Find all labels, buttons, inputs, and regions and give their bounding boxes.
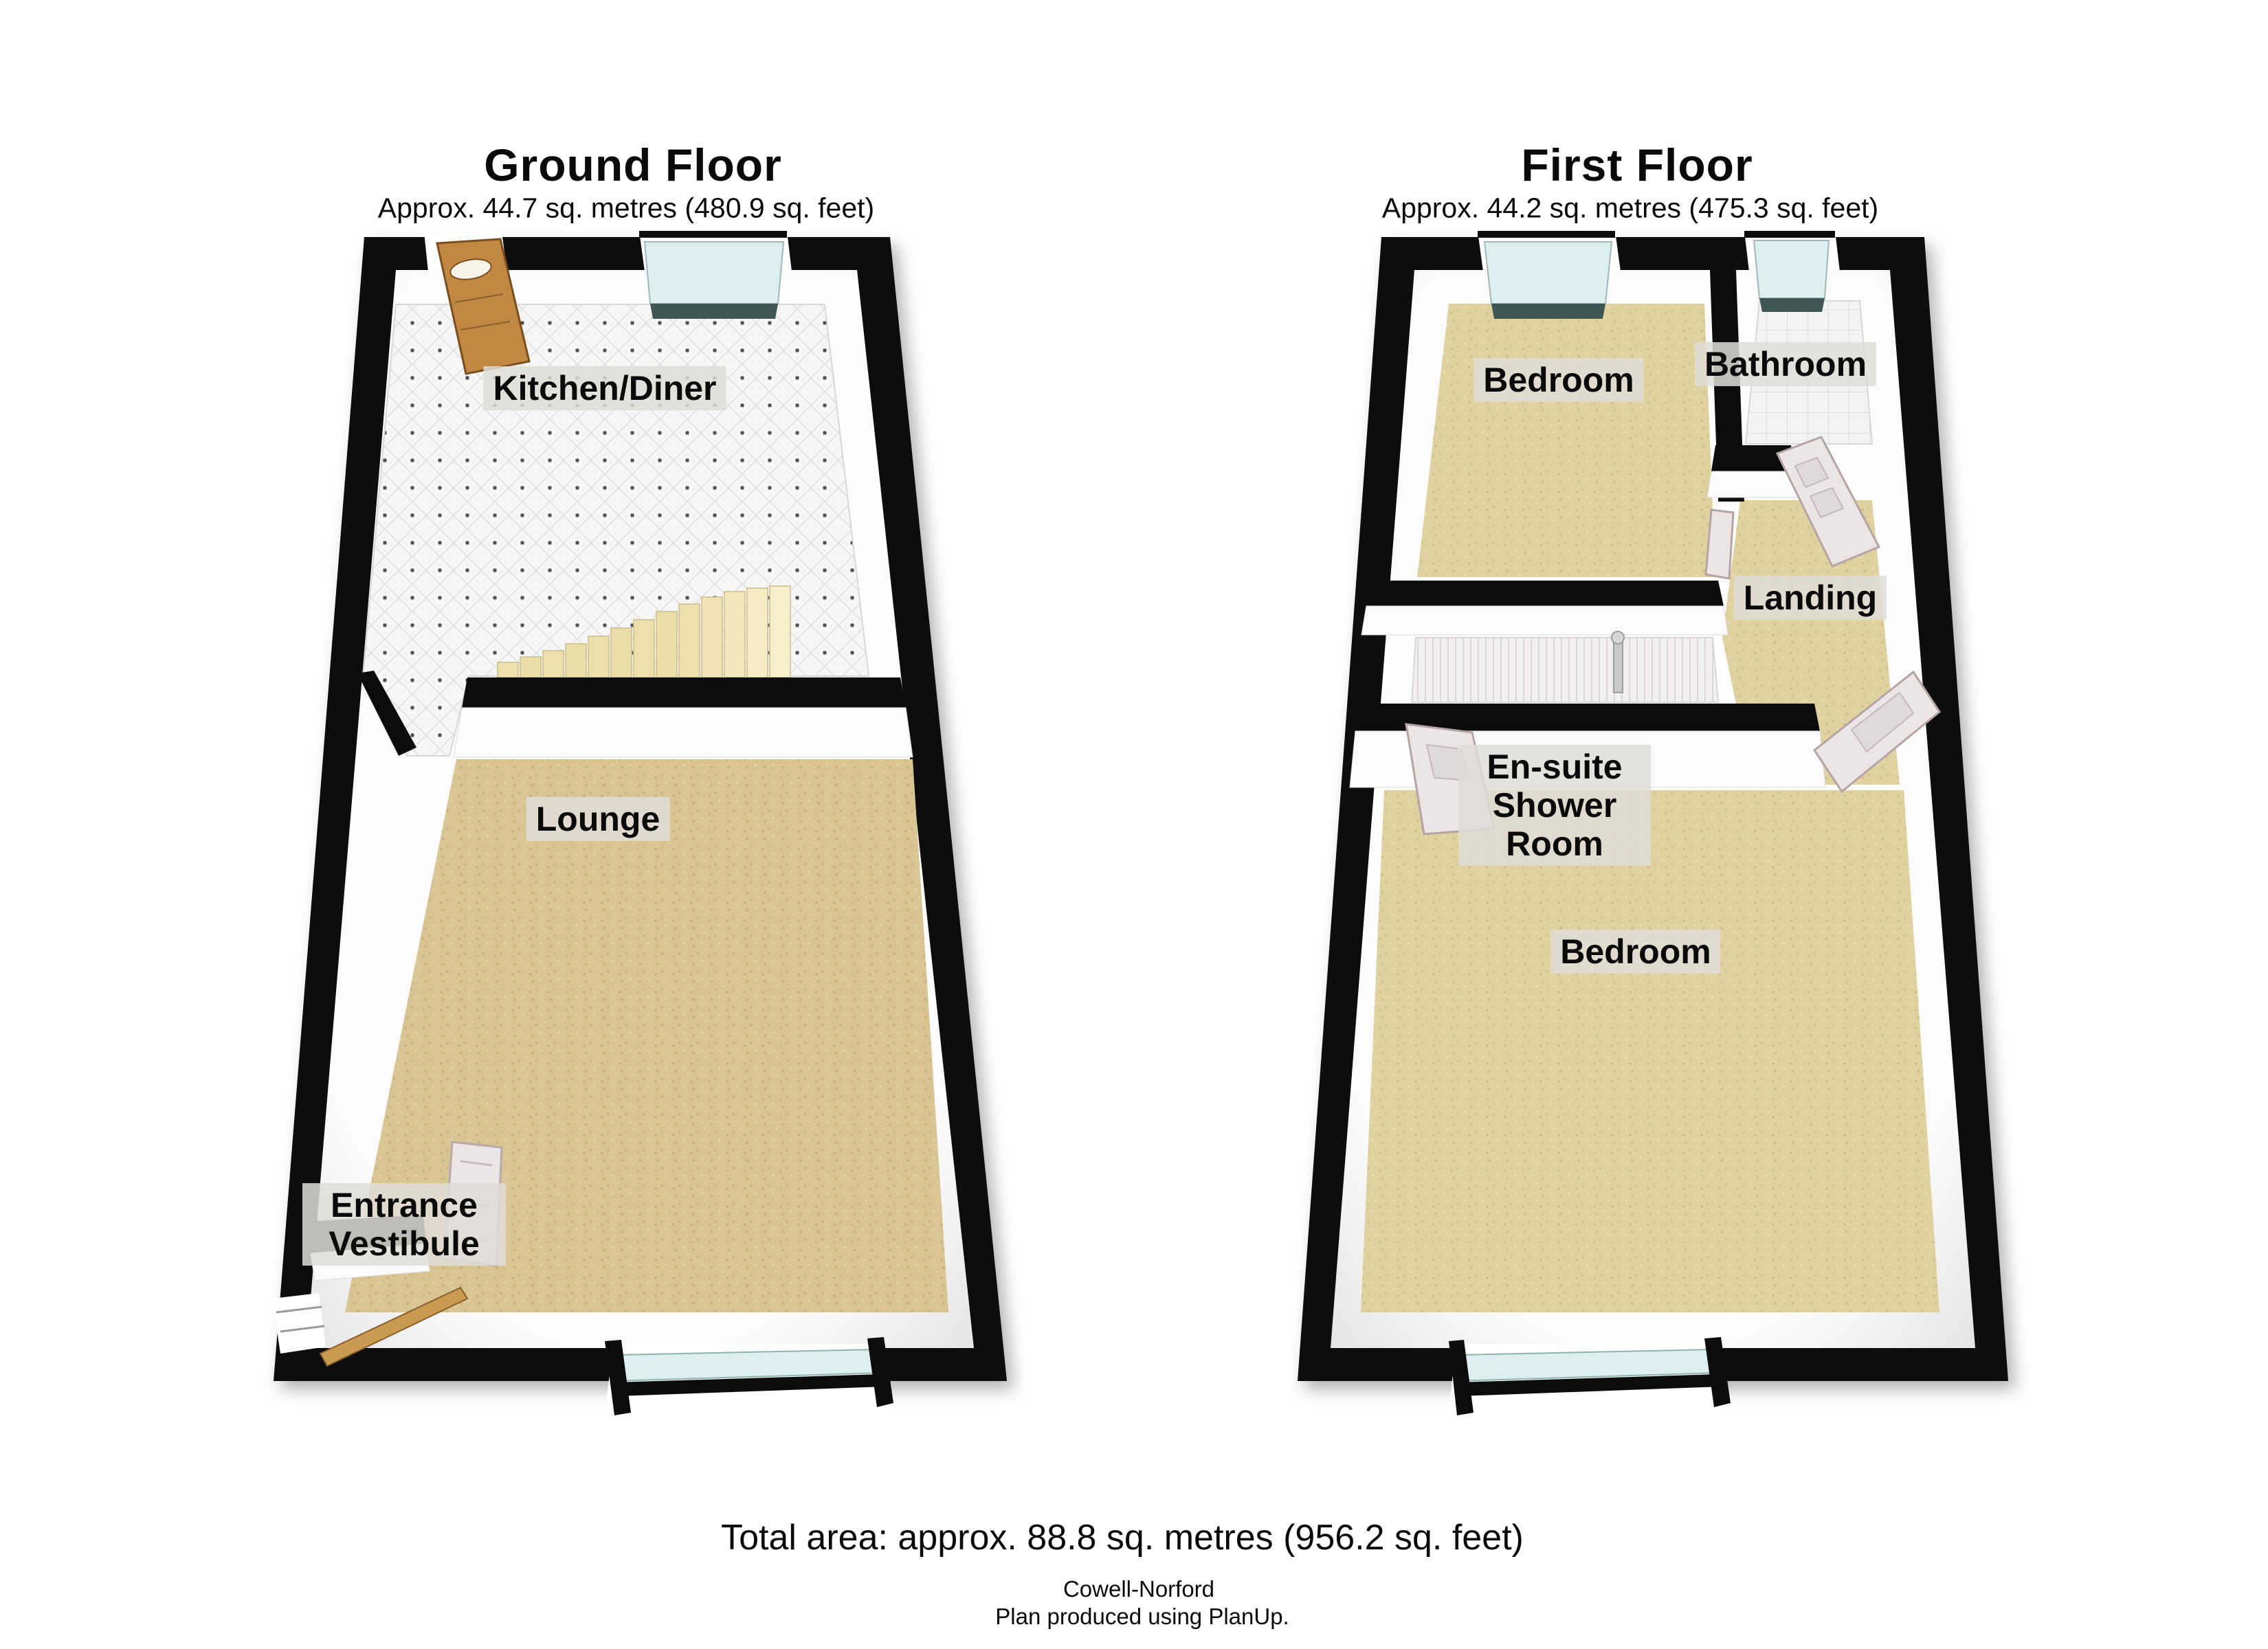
- ff-ensuite-floor: [1412, 638, 1718, 702]
- gf-divider-wall-face: [454, 708, 913, 757]
- room-label-bedroom-front: Bedroom: [1474, 358, 1643, 402]
- ff-bathroom-bottom-wall-face: [1707, 471, 1799, 497]
- room-label-bedroom-rear: Bedroom: [1550, 930, 1720, 974]
- room-label-kitchen-diner: Kitchen/Diner: [483, 366, 726, 410]
- ff-bedroom-rear-floor: [1361, 790, 1939, 1312]
- ff-bedroom-window: [1478, 231, 1621, 319]
- first-floor-title: First Floor: [1521, 139, 1753, 191]
- gf-frontdoor-gap: [272, 1293, 326, 1354]
- ff-bedroom-front-floor: [1417, 304, 1715, 577]
- credit-line-text: Plan produced using PlanUp.: [995, 1604, 1289, 1630]
- ff-radiator: [1612, 631, 1624, 693]
- agent-name-text: Cowell-Norford: [1063, 1576, 1214, 1602]
- ground-floor-title: Ground Floor: [484, 139, 782, 191]
- gf-bay-window: [605, 1337, 893, 1415]
- floorplan-page: Ground Floor Approx. 44.7 sq. metres (48…: [0, 0, 2268, 1649]
- room-label-lounge: Lounge: [526, 797, 670, 841]
- first-floor-plan: [1271, 227, 2048, 1436]
- total-area-text: Total area: approx. 88.8 sq. metres (956…: [721, 1517, 1524, 1558]
- room-label-entrance-vestibule: Entrance Vestibule: [302, 1183, 506, 1266]
- room-label-ensuite-shower-room: En-suite Shower Room: [1458, 745, 1651, 866]
- gf-divider-wall: [462, 677, 906, 708]
- ff-bay-window: [1449, 1337, 1731, 1415]
- gf-kitchen-window: [639, 231, 792, 319]
- room-label-landing: Landing: [1734, 576, 1887, 620]
- ff-bedroom-front-bottom-wall: [1366, 581, 1724, 606]
- ff-bedroom-front-bottom-wall-face: [1361, 606, 1728, 635]
- ff-bedroom-front-door: [1706, 510, 1733, 579]
- room-label-bathroom: Bathroom: [1695, 342, 1876, 386]
- ground-floor-area: Approx. 44.7 sq. metres (480.9 sq. feet): [378, 192, 874, 225]
- first-floor-area: Approx. 44.2 sq. metres (475.3 sq. feet): [1382, 192, 1878, 225]
